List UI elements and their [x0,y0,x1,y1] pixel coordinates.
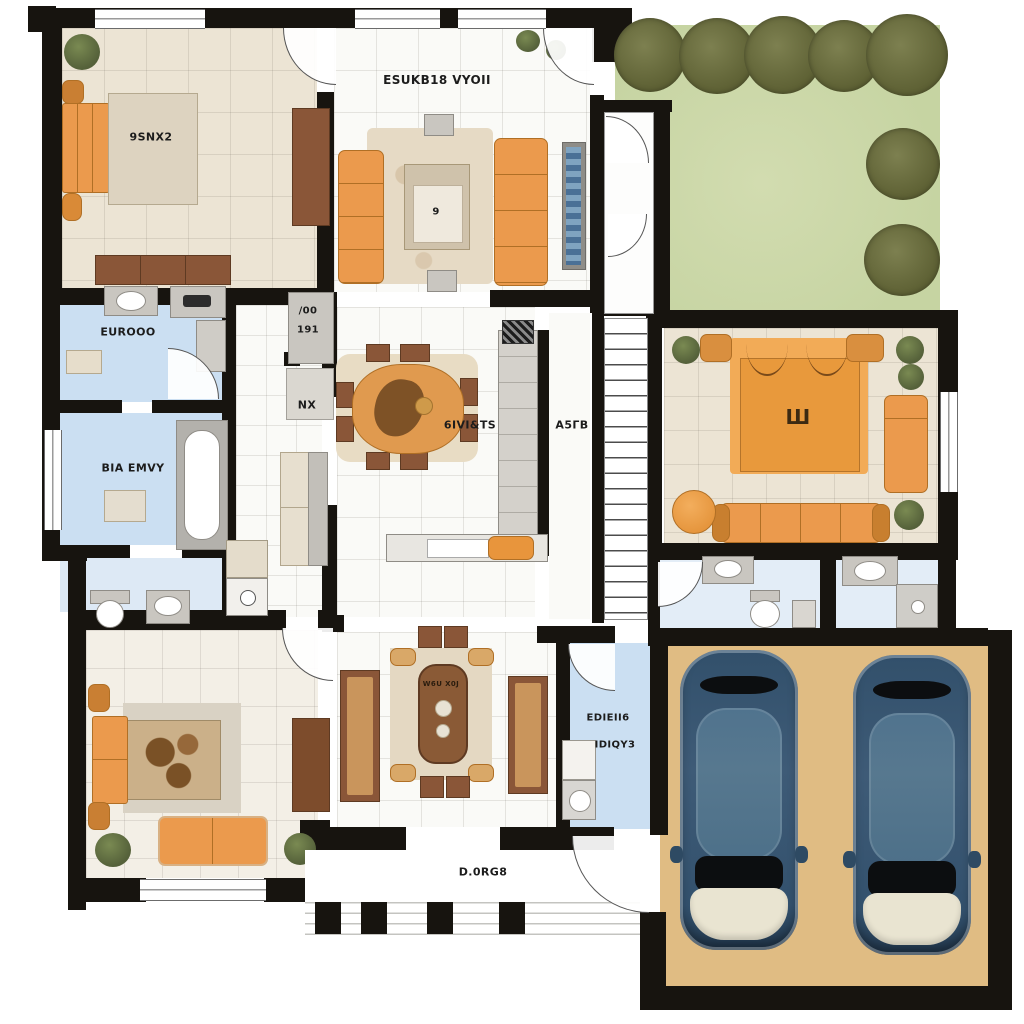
bathroom2-label: BIA EMVY [102,462,165,475]
living-room-label: ESUKB18 VYOII [383,73,491,87]
tv-stand [424,114,454,136]
plant [95,833,131,867]
coffee-table-glyph: 9 [432,207,439,218]
laundry-label-1: EDIEII6 [587,713,630,724]
vanity-icon [183,295,211,307]
washer-drum-icon [569,790,591,812]
window [95,9,205,29]
kitchen-label: 6IVI&TS [444,419,496,432]
nightstand [62,80,84,104]
stove [226,578,268,616]
plant [64,34,100,70]
bathtub [184,430,220,540]
window [940,392,958,492]
desk [292,718,330,812]
wall [590,95,604,313]
car-roof [869,713,955,865]
garden-bush [866,128,940,200]
porch-pillar [361,902,387,934]
porch-pillar [499,902,525,934]
porch-pillar [427,902,453,934]
car-mirror [670,846,683,863]
car [853,655,971,955]
car-rear-window [700,676,778,694]
wall [537,626,615,643]
bed-headboard [92,716,128,804]
floor-plan: 9SNX2 ESUKB18 VYOII 9 Ш EUROOO BIA EMVY [0,0,1024,1024]
cooktop [427,539,489,558]
dining-bench [340,670,380,802]
nightstand [88,802,110,830]
bed [127,720,221,800]
wall [652,105,670,315]
master-sofa [720,503,882,543]
car-hood [690,888,788,940]
round-table [352,364,464,454]
wall [42,8,62,298]
vanity [170,286,226,318]
plant [516,30,540,52]
car-windshield [868,861,956,897]
cabinet [104,490,146,522]
hall-cabinet-top-label: /00 [299,306,318,317]
bedroom1-label: 9SNX2 [130,131,173,144]
wall [490,290,602,307]
shelf [66,350,102,374]
dresser [95,255,231,285]
laundry-label-2: IDIQY3 [595,740,636,751]
toilet-bowl [96,600,124,628]
desk [292,108,330,226]
car-mirror [795,846,808,863]
chair [446,776,470,798]
corner-seat [390,764,416,782]
ottoman [672,490,716,534]
plate [436,724,450,738]
sofa-right [494,138,548,286]
cabinet [562,740,596,780]
plant [894,500,924,530]
wall [592,313,604,623]
wall [650,630,668,835]
window [458,9,546,29]
chair [400,344,430,362]
bench [62,193,82,221]
chair [366,344,390,362]
car-mirror [843,851,856,868]
wall [152,400,228,413]
stair-hall-floor [549,313,590,619]
chaise-lounge [884,395,928,493]
tv-stand [427,270,457,292]
side-table [846,334,884,362]
sofa-left [338,150,384,284]
wall [60,545,130,558]
plant [672,336,700,364]
stove-knob-icon [240,590,256,606]
chair [444,626,468,648]
shower [896,584,938,628]
fixture [792,600,816,628]
window [355,9,440,29]
garden-bush [866,14,948,96]
shower-drain-icon [911,600,925,614]
sink-basin [854,561,886,581]
wall [988,630,1012,1010]
master-rug-glyph: Ш [785,405,810,429]
bathroom1-label: EUROOO [100,326,155,339]
corner-seat [468,648,494,666]
porch-pillar [315,902,341,934]
tv-media-unit [562,142,586,270]
hall-panel [286,368,334,420]
counter-strip [308,452,328,566]
garden-bush [864,224,940,296]
wall [648,310,958,328]
garden-bush [614,18,686,92]
loveseat [158,816,268,866]
window [140,879,266,901]
chair [400,452,428,470]
dining-bench [508,676,548,794]
corner-seat [468,764,494,782]
plant [898,364,924,390]
tall-cabinet [280,452,310,566]
car-hood [863,893,961,945]
car [680,650,798,950]
bed-headboard [62,103,110,193]
tv-screen [566,147,581,265]
bench-cushion [515,683,541,787]
chair [418,626,442,648]
pantry-hatch [502,320,534,344]
car-mirror [968,851,981,868]
wall [60,400,122,413]
staircase [604,318,648,620]
car-windshield [695,856,783,892]
plate [435,700,452,717]
wall [820,556,836,632]
wall [640,986,1012,1010]
hallway-label: NX [298,399,317,412]
toilet-bowl [750,600,780,628]
chair [336,416,354,442]
wall [68,545,86,910]
wall [68,878,146,902]
porch-label: D.0RG8 [459,866,508,879]
bench-cushion [347,677,373,795]
nightstand [88,684,110,712]
porch-steps [305,893,640,938]
sofa-arm [872,504,890,542]
bathtub-surround [176,420,228,550]
washer [562,780,596,820]
car-roof [696,708,782,860]
wall [648,628,988,646]
chair [420,776,444,798]
sink-basin [116,291,146,311]
window [44,430,62,530]
wall [646,543,956,560]
counter-cushion [488,536,534,560]
chair [366,452,390,470]
corner-seat [390,648,416,666]
side-table [700,334,732,362]
pantry-column [498,330,538,562]
hall-cabinet-bottom-label: 191 [297,325,319,336]
plant [896,336,924,364]
car-rear-window [873,681,951,699]
stair-hall-label: A5ГB [555,419,588,432]
plate [415,397,433,415]
dining-table [418,664,468,764]
sink-basin [714,560,742,578]
sink-basin [154,596,182,616]
appliance [226,540,268,578]
wall [938,556,956,632]
dining-table-doodle: W6U X0J [423,680,459,688]
bed [108,93,198,205]
wall [646,310,662,555]
